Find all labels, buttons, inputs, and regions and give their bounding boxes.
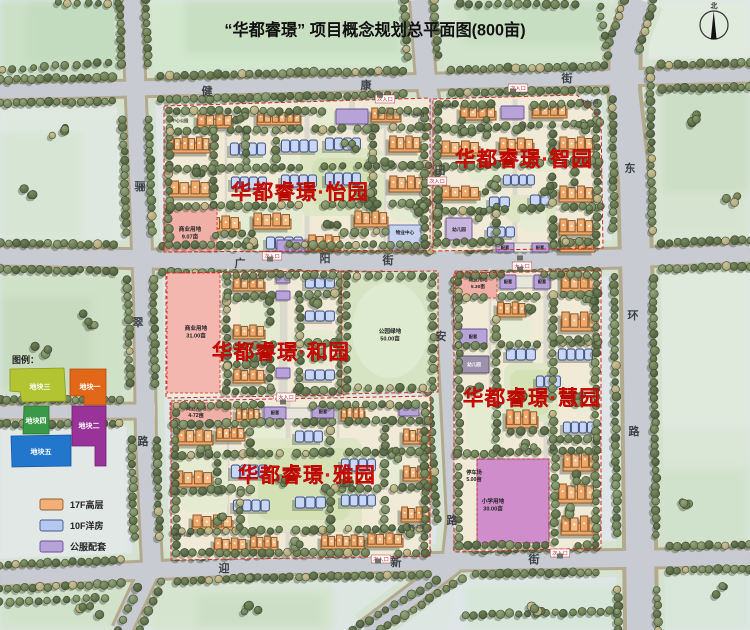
- svg-text:地块二: 地块二: [79, 421, 100, 430]
- svg-text:“华都睿璟” 项目概念规划总平面图(800亩): “华都睿璟” 项目概念规划总平面图(800亩): [224, 21, 525, 40]
- svg-text:路: 路: [629, 424, 641, 438]
- svg-text:路: 路: [138, 434, 150, 448]
- svg-text:中心公园: 中心公园: [408, 523, 425, 530]
- svg-text:商业用地: 商业用地: [179, 225, 202, 233]
- svg-text:骊: 骊: [135, 180, 146, 193]
- svg-text:停车场: 停车场: [466, 468, 482, 476]
- svg-text:配套: 配套: [536, 244, 545, 251]
- svg-text:配套: 配套: [469, 333, 478, 340]
- svg-text:街: 街: [528, 552, 540, 566]
- svg-text:健: 健: [202, 84, 214, 98]
- svg-text:翠: 翠: [133, 316, 144, 329]
- svg-text:5.00亩: 5.00亩: [466, 475, 481, 483]
- svg-text:康: 康: [361, 78, 373, 92]
- svg-text:幼儿园: 幼儿园: [467, 361, 481, 368]
- svg-text:华都睿璟·雅园: 华都睿璟·雅园: [238, 463, 376, 487]
- svg-text:9.07亩: 9.07亩: [182, 233, 199, 241]
- svg-text:10F洋房: 10F洋房: [70, 520, 104, 531]
- svg-text:中心公园: 中心公园: [408, 111, 425, 118]
- svg-text:次入口: 次入口: [429, 177, 445, 185]
- svg-text:图例：: 图例：: [12, 354, 39, 365]
- svg-text:商业用地: 商业用地: [185, 324, 208, 332]
- svg-text:迎: 迎: [219, 561, 230, 575]
- svg-text:物业中心: 物业中心: [396, 229, 415, 236]
- svg-text:华都睿璟·和园: 华都睿璟·和园: [212, 340, 350, 364]
- svg-text:新: 新: [391, 555, 402, 569]
- svg-text:地块三: 地块三: [30, 382, 51, 391]
- svg-text:50.00亩: 50.00亩: [380, 335, 400, 343]
- svg-text:31.00亩: 31.00亩: [186, 332, 206, 340]
- svg-text:街: 街: [561, 71, 573, 85]
- svg-text:北: 北: [711, 1, 718, 10]
- svg-text:街: 街: [382, 253, 394, 267]
- svg-text:田: 田: [435, 164, 446, 177]
- svg-text:中心公园: 中心公园: [582, 98, 599, 105]
- svg-text:阳: 阳: [320, 251, 331, 265]
- svg-text:华都睿璟·怡园: 华都睿璟·怡园: [231, 180, 369, 204]
- svg-text:华都睿璟·慧园: 华都睿璟·慧园: [463, 386, 601, 410]
- svg-text:广: 广: [235, 256, 246, 270]
- svg-text:华都睿璟·智园: 华都睿璟·智园: [455, 147, 593, 171]
- svg-text:公园绿地: 公园绿地: [379, 327, 402, 335]
- svg-text:地块四: 地块四: [26, 416, 47, 425]
- svg-text:东: 东: [625, 161, 636, 175]
- svg-text:小学用地: 小学用地: [482, 497, 505, 505]
- svg-text:环: 环: [628, 309, 639, 322]
- svg-text:安: 安: [436, 329, 447, 343]
- svg-text:中心公园: 中心公园: [175, 531, 192, 538]
- svg-text:配套: 配套: [504, 278, 513, 285]
- svg-text:30.00亩: 30.00亩: [483, 505, 503, 513]
- svg-text:幼儿园: 幼儿园: [452, 226, 466, 233]
- svg-text:5.30亩: 5.30亩: [471, 283, 485, 290]
- svg-text:公服配套: 公服配套: [70, 541, 107, 552]
- svg-text:地块五: 地块五: [31, 447, 52, 456]
- svg-text:中心公园: 中心公园: [437, 102, 454, 109]
- svg-text:4-72亩: 4-72亩: [188, 411, 204, 419]
- svg-text:17F高层: 17F高层: [70, 499, 104, 510]
- svg-text:地块一: 地块一: [80, 382, 101, 391]
- svg-text:中心公园: 中心公园: [172, 117, 189, 124]
- svg-text:路: 路: [447, 513, 459, 527]
- svg-text:配套: 配套: [271, 409, 280, 416]
